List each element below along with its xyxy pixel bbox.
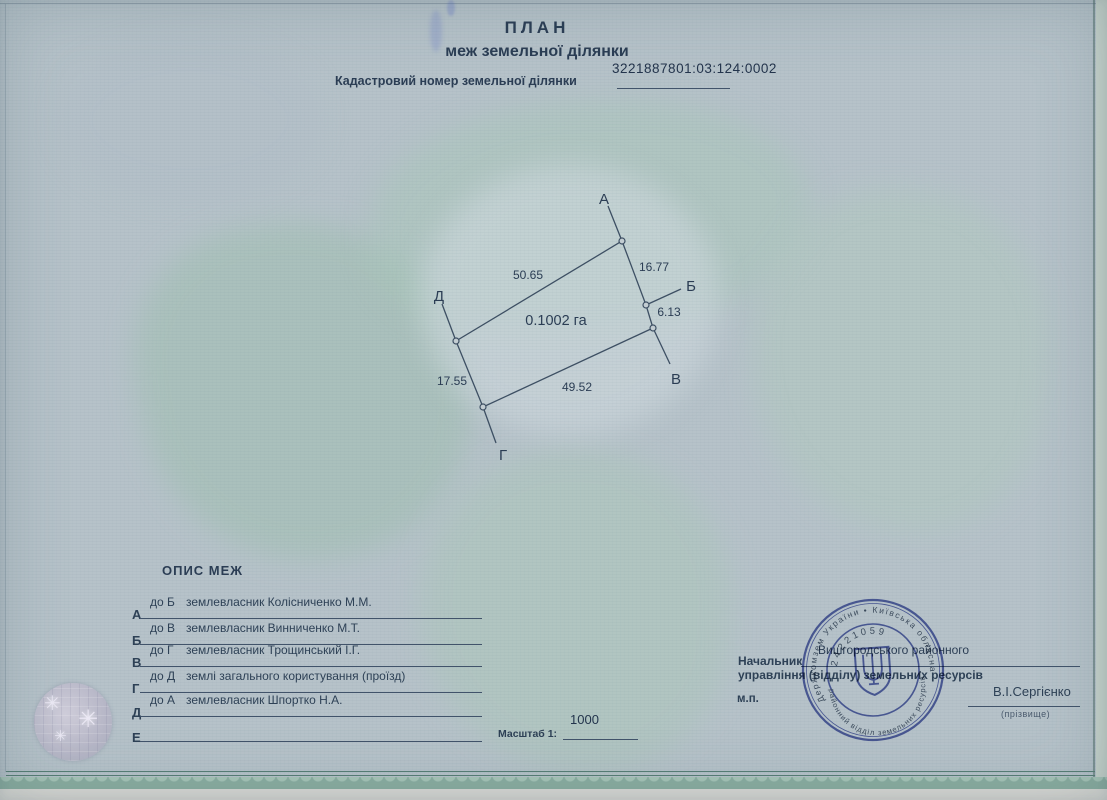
frame-right-line [1093,0,1095,777]
ray-to-label-g [483,407,496,443]
cadastral-number-line [617,88,730,89]
row-line [140,666,482,667]
row-direction: до Д [150,669,175,683]
scale-line [563,739,638,740]
boundary-row: Г до Д землі загального користування (пр… [132,669,482,693]
row-description: землевласник Шпортко Н.А. [186,693,342,707]
row-letter: Е [132,730,141,745]
vertex-label-v: В [671,371,681,388]
row-description: землевласник Колісниченко М.М. [186,595,372,609]
measurement-dg: 17.55 [437,374,467,388]
vertex-label-b: Б [686,278,696,295]
ray-to-label-v [653,328,670,364]
ray-to-label-d [442,304,456,341]
vertex-point-g [480,404,486,410]
boundary-row: Е [132,718,482,742]
trident-icon [855,647,892,696]
cadastral-number: 3221887801:03:124:0002 [612,61,777,76]
row-direction: до В [150,621,175,635]
page-right-margin [1096,0,1107,789]
row-line [140,741,482,742]
row-direction: до А [150,693,175,707]
page-subtitle: меж земельної ділянки [0,43,1074,61]
boundary-row: В до Г землевласник Трощинський І.Г. [132,643,482,667]
seal-place-abbr: м.п. [737,693,759,705]
row-letter: В [132,655,141,670]
row-description: землевласник Винниченко М.Т. [186,621,360,635]
hologram-seal: ✳ ✳ ✳ [34,683,112,761]
ray-to-label-a [608,206,622,241]
chief-label: Начальник [738,654,802,668]
scale-value: 1000 [570,712,599,727]
page-top-edge [0,3,1107,4]
sparkle-icon: ✳ [54,727,67,745]
boundary-row: А до Б землевласник Колісниченко М.М. [132,595,482,619]
vertex-point-a [619,238,625,244]
watermark-blob [728,171,1072,549]
area-label: 0.1002 га [525,313,587,329]
boundary-description-title: ОПИС МЕЖ [162,563,243,578]
row-description: землевласник Трощинський І.Г. [186,643,360,657]
row-direction: до Г [150,643,174,657]
frame-bottom-line [6,771,1095,776]
ray-to-label-b [646,289,681,305]
row-letter: А [132,607,141,622]
page-title: ПЛАН [0,18,1074,38]
measurement-da: 50.65 [513,268,543,282]
row-direction: до Б [150,595,175,609]
scanned-land-plan-document: ПЛАН меж земельної ділянки 3221887801:03… [0,0,1107,800]
watermark-blob [60,40,320,200]
boundary-row: Б до В землевласник Винниченко М.Т. [132,621,482,645]
measurement-bv: 6.13 [657,305,681,319]
measurement-ab: 16.77 [639,260,669,274]
vertex-point-b [643,302,649,308]
signature-caption: (прізвище) [1001,709,1050,719]
vertex-label-g: Г [499,447,507,464]
scale-label: Масштаб 1: [498,728,557,740]
page-left-edge [5,4,6,772]
sparkle-icon: ✳ [78,705,98,734]
row-description: землі загального користування (проїзд) [186,669,405,683]
vertex-point-d [453,338,459,344]
row-line [140,618,482,619]
signature-line [968,706,1080,707]
official-stamp: Держкомзем України • Київська обласна • … [797,594,949,746]
vertex-label-a: А [599,191,609,208]
plot-diagram: А Б В Г Д 50.65 16.77 6.13 17.55 49.52 0… [400,150,730,480]
decorative-border-band [0,777,1107,789]
ink-smudge [447,0,455,16]
sparkle-icon: ✳ [44,691,61,716]
scan-edge-strip [0,789,1107,800]
vertex-point-v [650,325,656,331]
measurement-gv: 49.52 [562,380,592,394]
cadastral-number-label: Кадастровий номер земельної ділянки [335,74,577,88]
vertex-label-d: Д [434,288,444,305]
boundary-row: Д до А землевласник Шпортко Н.А. [132,693,482,717]
signature-name: В.І.Сергієнко [993,684,1071,699]
row-line [140,716,482,717]
